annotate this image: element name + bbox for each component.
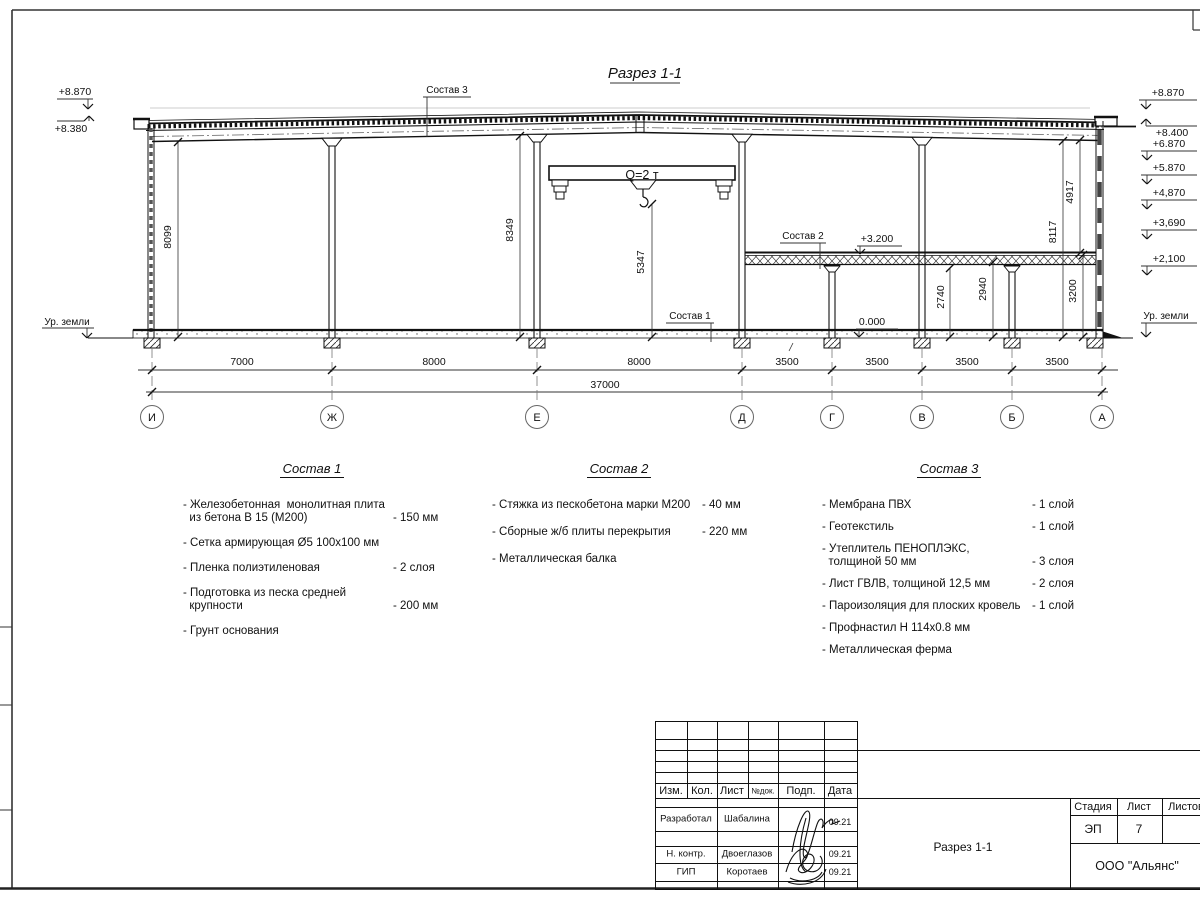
doc-name: Разрез 1-1 [934, 840, 993, 854]
sheets-label: Листов [1168, 801, 1200, 813]
composition-item: - Металлическая ферма [822, 644, 1076, 657]
item-value: - 3 слоя [1030, 556, 1074, 569]
elev-right-4870: +4,870 [1153, 187, 1186, 199]
tb-header-4: Подп. [786, 785, 815, 797]
crane-capacity-label: Q=2 т [625, 168, 658, 182]
composition-item: - Подготовка из песка средней крупности-… [183, 587, 441, 613]
tb-role-0: Разработал [660, 814, 712, 825]
sheet-label: Лист [1127, 801, 1151, 813]
tb-name-0: Шабалина [724, 814, 770, 825]
composition-item: - Грунт основания [183, 625, 441, 638]
tb-header-2: Лист [720, 785, 744, 797]
item-name: - Металлическая ферма [822, 644, 1030, 657]
foundation-pad [824, 338, 840, 348]
item-value: - 40 мм [700, 499, 741, 512]
composition-2-title: Состав 2 [587, 462, 652, 478]
elev-right-5870: +5.870 [1153, 162, 1186, 174]
item-name: - Сборные ж/б плиты перекрытия [492, 526, 700, 539]
columns-main [322, 134, 932, 338]
dim-2740: 2740 [935, 285, 947, 309]
axis-letter: А [1098, 412, 1106, 424]
wall-left [148, 124, 154, 338]
span-dim-6: 3500 [1045, 356, 1069, 368]
composition-item: - Металлическая балка [492, 553, 746, 566]
item-name: - Стяжка из пескобетона марки М200 [492, 499, 700, 512]
item-name: - Пленка полиэтиленовая [183, 562, 391, 575]
composition-list-2: Состав 2 - Стяжка из пескобетона марки М… [492, 462, 746, 612]
span-dim-5: 3500 [955, 356, 979, 368]
item-name: - Профнастил Н 114х0.8 мм [822, 622, 1030, 635]
composition-3-items: - Мембрана ПВХ- 1 слой- Геотекстиль- 1 с… [822, 499, 1076, 666]
dim-2940: 2940 [977, 277, 989, 301]
bottom-dims [138, 370, 1118, 392]
item-value: - 200 мм [391, 600, 438, 613]
item-value: - 1 слой [1030, 600, 1074, 613]
composition-item: - Лист ГВЛВ, толщиной 12,5 мм- 2 слоя [822, 578, 1076, 591]
item-value: - 2 слоя [1030, 578, 1074, 591]
composition-item: - Утеплитель ПЕНОПЛЭКС, толщиной 50 мм- … [822, 543, 1076, 569]
composition-2-items: - Стяжка из пескобетона марки М200- 40 м… [492, 499, 746, 580]
foundation-pad [1004, 338, 1020, 348]
axis-letter: Е [533, 412, 540, 424]
dim-8349: 8349 [504, 218, 516, 242]
columns-mezzanine [824, 266, 1020, 339]
dim-8099: 8099 [162, 225, 174, 249]
item-value: - 2 слоя [391, 562, 435, 575]
axis-letter: В [918, 412, 925, 424]
tb-role-2: ГИП [677, 867, 696, 878]
ground-level-left: Ур. земли [44, 317, 89, 328]
item-value: - 150 мм [391, 512, 438, 525]
sheet-value: 7 [1136, 822, 1143, 836]
composition-item: - Сборные ж/б плиты перекрытия- 220 мм [492, 526, 746, 539]
composition-item: - Геотекстиль- 1 слой [822, 521, 1076, 534]
tb-name-2: Коротаев [726, 867, 767, 878]
axis-letter: Ж [327, 412, 337, 424]
stage-value: ЭП [1084, 822, 1101, 836]
foundation-pad [324, 338, 340, 348]
axis-letter: Б [1008, 412, 1015, 424]
item-name: - Грунт основания [183, 625, 391, 638]
total-dim: 37000 [590, 379, 619, 391]
tb-date-2: 09.21 [829, 867, 852, 877]
item-name: - Сетка армирующая Ø5 100х100 мм [183, 537, 391, 550]
axis-letter: Г [829, 412, 835, 424]
item-name: - Пароизоляция для плоских кровель [822, 600, 1030, 613]
section-title: Разрез 1-1 [608, 65, 682, 82]
composition-item: - Железобетонная монолитная плита из бет… [183, 499, 441, 525]
wall-right [1096, 121, 1103, 338]
company-name: ООО "Альянс" [1095, 859, 1179, 873]
composition-1-title: Состав 1 [280, 462, 345, 478]
item-value: - 1 слой [1030, 521, 1074, 534]
span-dim-1: 8000 [422, 356, 446, 368]
floor-ground [88, 330, 1133, 351]
span-dim-2: 8000 [627, 356, 651, 368]
composition-item: - Пленка полиэтиленовая- 2 слоя [183, 562, 441, 575]
composition-list-3: Состав 3 - Мембрана ПВХ- 1 слой- Геотекс… [822, 462, 1076, 692]
tb-name-1: Двоеглазов [722, 849, 773, 860]
foundation-pad [1087, 338, 1103, 348]
composition-list-1: Состав 1 - Железобетонная монолитная пли… [183, 462, 441, 672]
item-name: - Геотекстиль [822, 521, 1030, 534]
elev-right-3690: +3,690 [1153, 217, 1186, 229]
composition-item: - Профнастил Н 114х0.8 мм [822, 622, 1076, 635]
parapet-right [1095, 117, 1117, 126]
composition-item: - Сетка армирующая Ø5 100х100 мм [183, 537, 441, 550]
item-name: - Железобетонная монолитная плита из бет… [183, 499, 391, 525]
title-block-left-table [655, 721, 858, 890]
elev-left-eave: +8.380 [55, 123, 88, 135]
item-name: - Лист ГВЛВ, толщиной 12,5 мм [822, 578, 1030, 591]
dim-8117: 8117 [1047, 221, 1059, 244]
tb-header-5: Дата [828, 785, 852, 797]
composition-3-title: Состав 3 [917, 462, 982, 478]
axis-bubbles: ИЖЕДГВБА [141, 406, 1114, 429]
elev-right-6870: +6.870 [1153, 138, 1186, 150]
dim-4917: 4917 [1064, 180, 1076, 204]
foundation-pad [914, 338, 930, 348]
item-value: - 220 мм [700, 526, 747, 539]
composition-item: - Пароизоляция для плоских кровель- 1 сл… [822, 600, 1076, 613]
elev-floor-0000: 0.000 [859, 316, 885, 328]
composition-1-items: - Железобетонная монолитная плита из бет… [183, 499, 441, 650]
item-value: - 1 слой [1030, 499, 1074, 512]
leader-label-sostav-1: Состав 1 [669, 311, 711, 322]
stage-label: Стадия [1074, 801, 1112, 813]
elev-right-8870: +8.870 [1152, 87, 1185, 99]
tb-header-0: Изм. [659, 785, 683, 797]
tb-header-3: №док. [751, 787, 774, 796]
tb-header-1: Кол. [691, 785, 713, 797]
elev-floor-3200: +3.200 [861, 233, 894, 245]
foundation-pad [529, 338, 545, 348]
item-name: - Подготовка из песка средней крупности [183, 587, 391, 613]
elevation-marks [42, 99, 1197, 338]
elev-left-top: +8.870 [59, 86, 92, 98]
leader-label-sostav-2: Состав 2 [782, 231, 824, 242]
blueprint-page: { "drawing": { "title": "Разрез 1-1", "a… [0, 0, 1200, 900]
tb-role-1: Н. контр. [666, 849, 705, 860]
ground-level-right: Ур. земли [1143, 311, 1188, 322]
item-name: - Металлическая балка [492, 553, 700, 566]
item-name: - Утеплитель ПЕНОПЛЭКС, толщиной 50 мм [822, 543, 1030, 569]
elev-right-2100: +2,100 [1153, 253, 1186, 265]
foundation-pad [734, 338, 750, 348]
axis-letter: И [148, 412, 156, 424]
foundation-pads [144, 338, 1103, 348]
leader-label-sostav-3: Состав 3 [426, 85, 468, 96]
foundation-pad [144, 338, 160, 348]
dim-5347: 5347 [635, 250, 647, 274]
span-dim-0: 7000 [230, 356, 254, 368]
tb-date-1: 09.21 [829, 849, 852, 859]
parapet-left [134, 119, 149, 129]
composition-item: - Мембрана ПВХ- 1 слой [822, 499, 1076, 512]
mezzanine-slab [745, 253, 1096, 265]
composition-item: - Стяжка из пескобетона марки М200- 40 м… [492, 499, 746, 512]
span-dim-3: 3500 [775, 356, 799, 368]
tb-date-0: 09.21 [829, 817, 852, 827]
roof [133, 112, 1136, 142]
axis-letter: Д [738, 412, 746, 424]
dim-3200: 3200 [1067, 279, 1079, 303]
item-name: - Мембрана ПВХ [822, 499, 1030, 512]
span-dim-4: 3500 [865, 356, 889, 368]
